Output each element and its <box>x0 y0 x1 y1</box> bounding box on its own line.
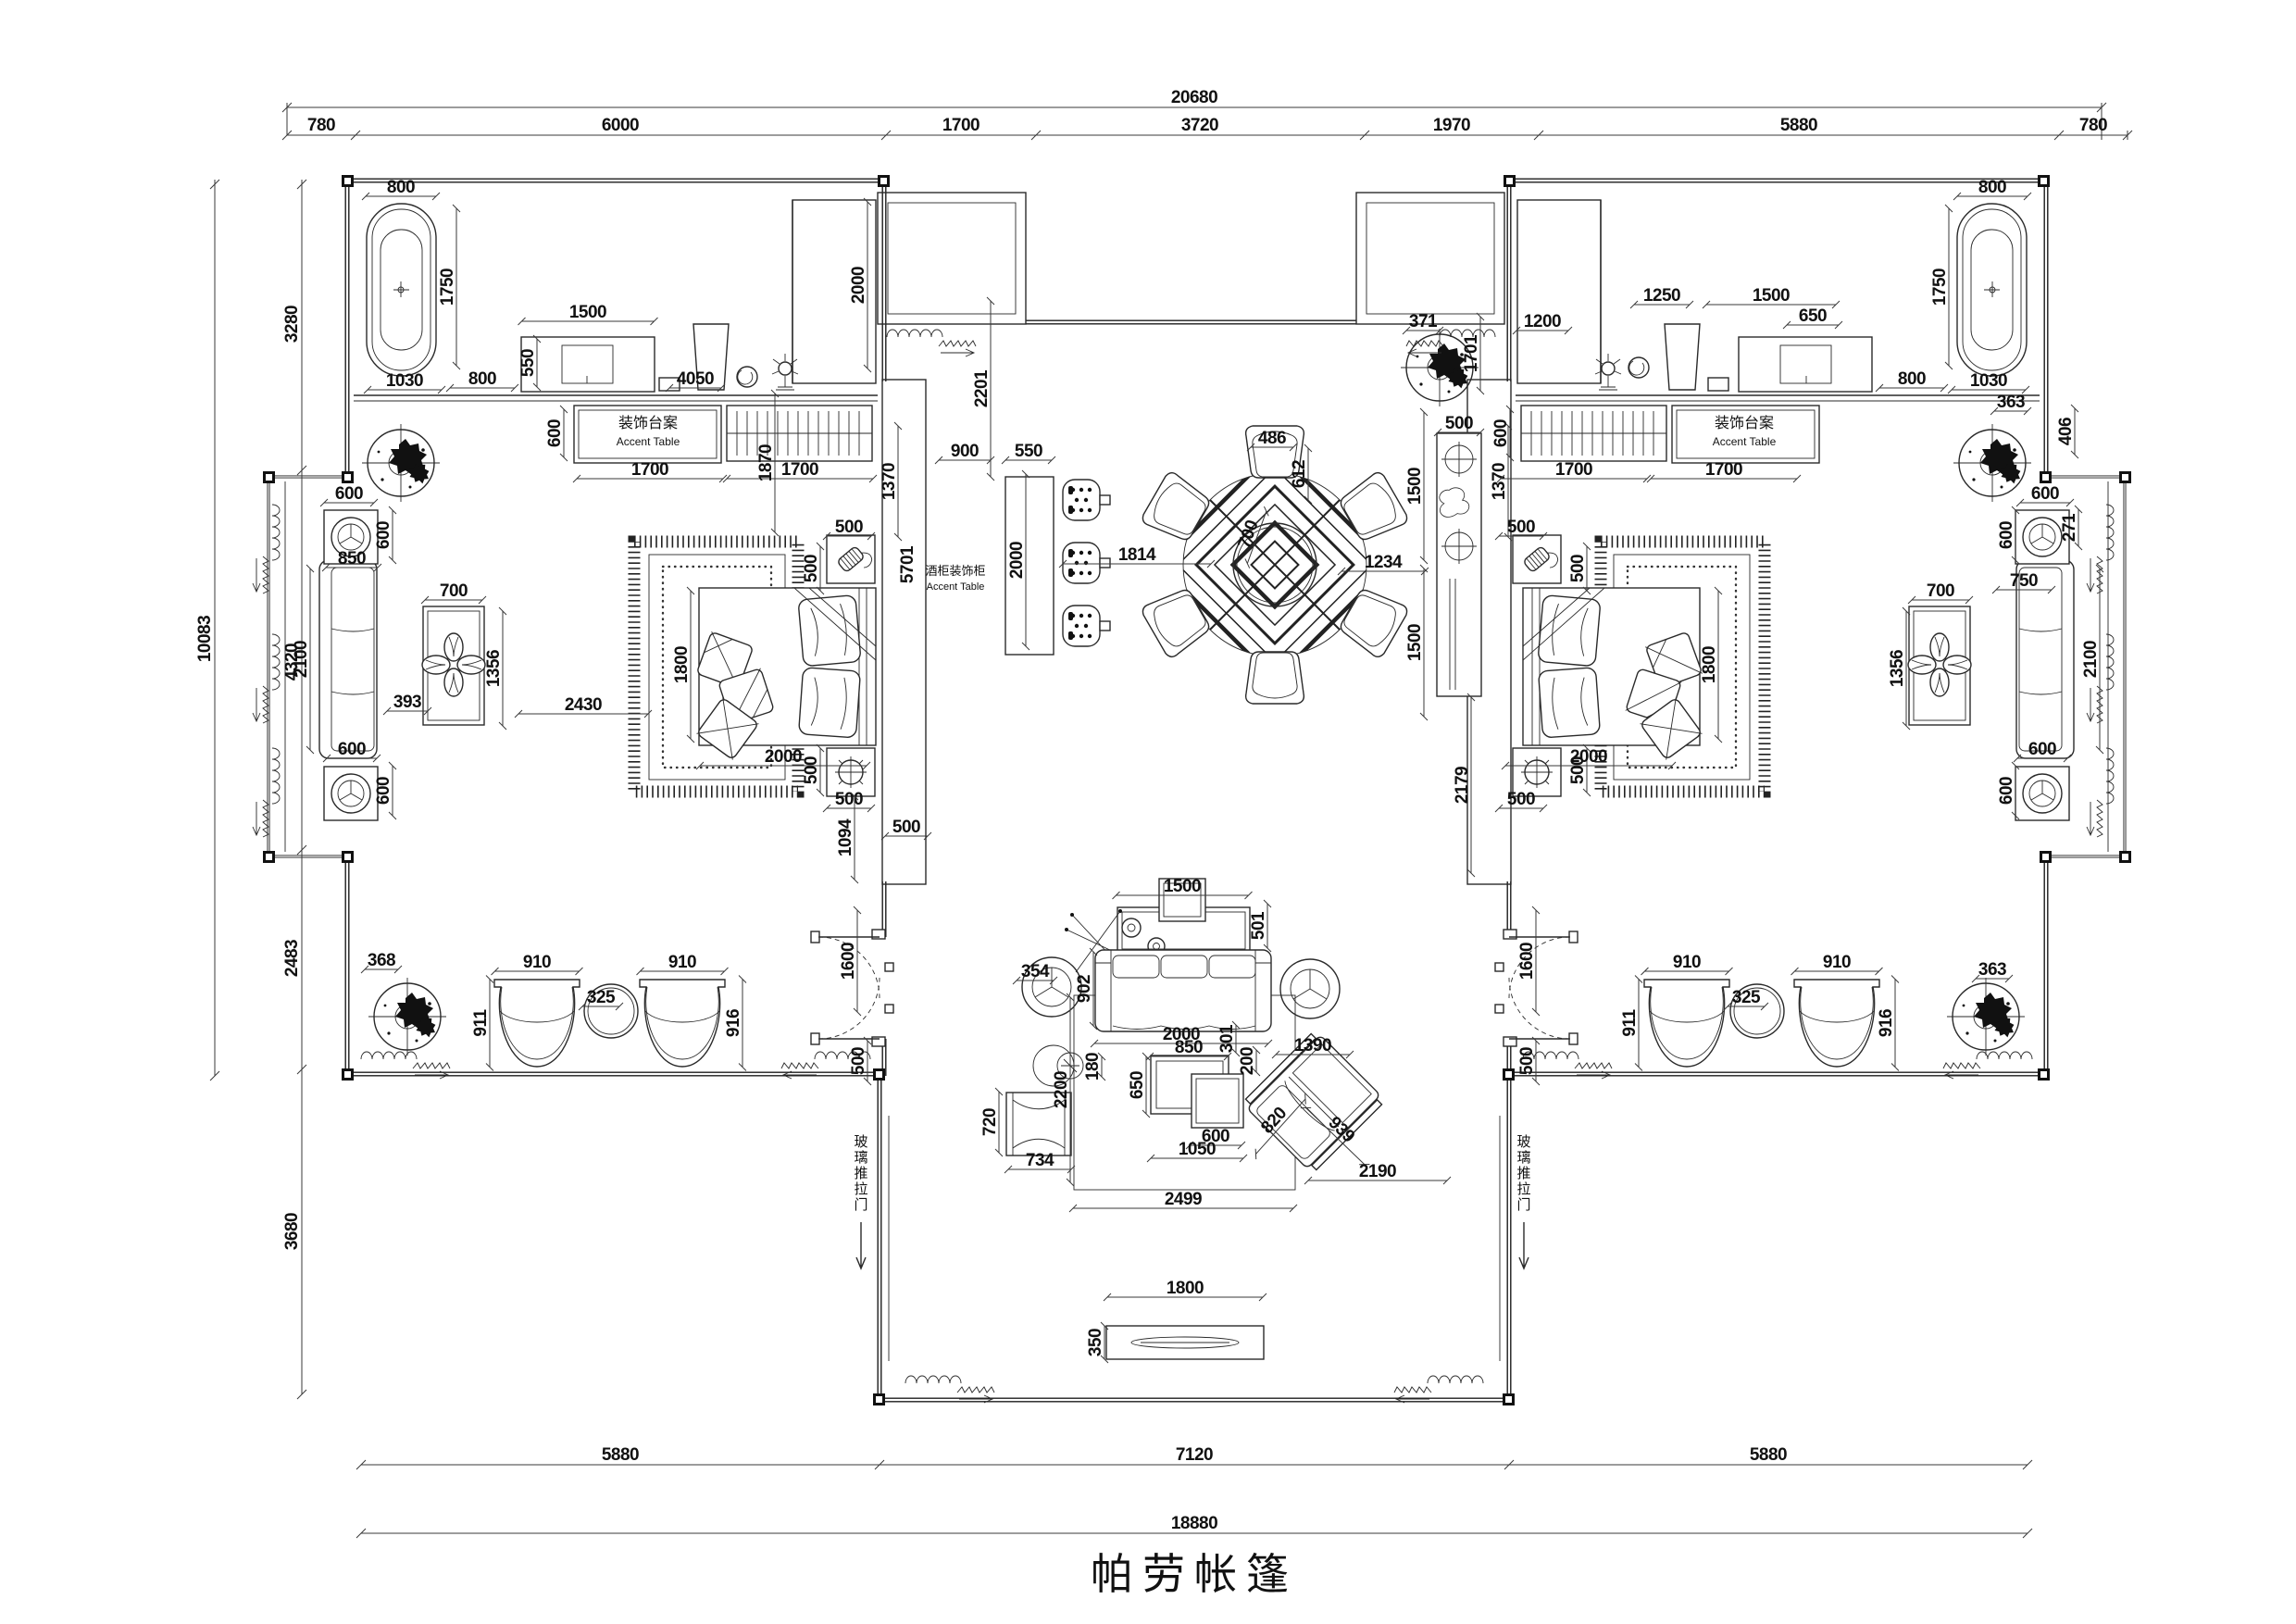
tub-chair-3 <box>1644 980 1729 1067</box>
dim-annotation: 910 <box>637 953 729 975</box>
dim-annotation: 780 <box>307 116 335 135</box>
dim-label: 2000 <box>765 747 802 767</box>
dim-label: 600 <box>374 777 393 805</box>
dimension-chains <box>210 103 2132 1538</box>
dim-label: 2499 <box>1165 1190 1202 1209</box>
dim-annotation: 5880 <box>602 1445 639 1465</box>
right-nightstand-top <box>1513 535 1561 583</box>
dim-annotation: 6000 <box>602 116 639 135</box>
dim-label: 612 <box>1290 460 1309 488</box>
dim-annotation: 800 <box>1876 369 1948 392</box>
dim-label: 734 <box>1026 1151 1054 1170</box>
dim-annotation: 1750 <box>438 205 460 369</box>
display-shelf <box>1437 433 1481 696</box>
dim-annotation: 916 <box>724 976 746 1071</box>
dim-label: Accent Table <box>617 435 680 448</box>
dim-annotation: 910 <box>1791 953 1883 975</box>
dim-label: 700 <box>1927 581 1954 601</box>
dim-annotation: 2499 <box>1069 1190 1297 1212</box>
dim-label: 3680 <box>282 1213 302 1250</box>
dim-annotation: 500 <box>1495 518 1547 540</box>
dim-annotation: Accent Table <box>1713 435 1777 448</box>
dim-annotation: 1500 <box>1113 877 1253 899</box>
dim-label: 酒柜装饰柜 <box>925 564 985 578</box>
dim-label: 1600 <box>839 943 858 980</box>
dim-label: 600 <box>1997 521 2016 549</box>
dim-label: 363 <box>1997 393 2025 412</box>
tv-console <box>1106 1326 1264 1359</box>
dim-annotation: 371 <box>1403 312 1443 334</box>
dim-label: 500 <box>802 555 821 582</box>
dim-annotation: 18880 <box>1171 1514 1217 1533</box>
dim-label: 1500 <box>569 303 606 322</box>
dim-label: 1800 <box>1700 646 1719 683</box>
tub-chair-1 <box>494 980 580 1067</box>
dim-label: 1750 <box>1930 269 1950 306</box>
dim-annotation: 550 <box>1002 442 1055 464</box>
dim-label: 1700 <box>631 460 668 480</box>
dim-label: 6000 <box>602 116 639 135</box>
dim-label: 916 <box>1877 1009 1896 1037</box>
left-nightstand-top <box>827 535 875 583</box>
dim-label: 2200 <box>1052 1071 1071 1108</box>
dim-annotation: 1700 <box>942 116 980 135</box>
dim-annotation: 1500 <box>518 303 658 325</box>
dim-annotation: 1750 <box>1930 205 1953 369</box>
dim-annotation: 2179 <box>1453 693 1475 877</box>
dim-label: 5880 <box>602 1445 639 1465</box>
dim-annotation: 325 <box>579 988 623 1010</box>
dim-label: 550 <box>518 349 538 377</box>
dim-label: 500 <box>1445 414 1473 433</box>
dim-annotation: 700 <box>421 581 486 604</box>
dim-annotation: 2200 <box>1052 993 1074 1186</box>
dim-annotation: 1030 <box>1948 371 2029 394</box>
dim-label: 1500 <box>1164 877 1201 896</box>
dim-label: 600 <box>338 740 366 759</box>
dim-annotation: 玻璃推拉门 <box>854 1134 867 1213</box>
pouf-2 <box>1063 543 1110 583</box>
dim-annotation: 301 <box>1217 1021 1240 1056</box>
dim-label: 1700 <box>1555 460 1592 480</box>
dim-label: 850 <box>338 549 366 568</box>
left-vanity-lamp-icon <box>772 354 798 390</box>
dim-label: 500 <box>835 518 863 537</box>
dim-label: 325 <box>587 988 616 1007</box>
dim-annotation: 装饰台案 <box>618 415 678 431</box>
dim-label: 20680 <box>1171 88 1217 107</box>
dim-annotation: 700 <box>1908 581 1973 604</box>
dim-annotation: 650 <box>1783 306 1842 329</box>
dim-label: 910 <box>668 953 696 972</box>
pouf-1 <box>1063 480 1110 520</box>
dim-annotation: 200 <box>1238 1046 1260 1076</box>
top-planter-right <box>1356 193 1504 324</box>
left-accent-table <box>574 406 872 463</box>
dim-annotation: 1200 <box>1513 312 1572 334</box>
pouf-3 <box>1063 606 1110 646</box>
dim-label: 325 <box>1732 988 1761 1007</box>
dim-label: 玻璃推拉门 <box>1516 1134 1530 1213</box>
dim-label: 1800 <box>1167 1279 1204 1298</box>
plant-right-bath <box>1953 424 2031 502</box>
dim-label: 800 <box>1898 369 1926 389</box>
dim-annotation: 7120 <box>1176 1445 1213 1465</box>
dim-label: 600 <box>335 484 363 504</box>
dim-label: 902 <box>1075 975 1094 1003</box>
dim-label: 1970 <box>1433 116 1470 135</box>
dim-label: 406 <box>2056 418 2076 445</box>
dim-annotation: 902 <box>1075 948 1097 1030</box>
dim-annotation: Accent Table <box>617 435 680 448</box>
dim-annotation: 900 <box>935 442 994 464</box>
dim-label: 1234 <box>1365 553 1403 572</box>
dim-annotation: 2100 <box>292 565 314 754</box>
right-accent-table <box>1521 406 1819 463</box>
dim-label: 911 <box>471 1008 491 1036</box>
dim-annotation: 酒柜装饰柜 <box>925 564 985 578</box>
dim-annotation: 393 <box>383 693 431 715</box>
dim-annotation: 1030 <box>364 371 445 394</box>
dim-annotation: 600 <box>320 484 378 506</box>
dim-annotation: 5880 <box>1750 1445 1787 1465</box>
dim-label: 2179 <box>1453 767 1472 804</box>
dim-label: 600 <box>545 419 565 447</box>
dim-label: 1870 <box>756 444 776 481</box>
dim-annotation: 3280 <box>282 306 302 343</box>
dim-annotation: 1800 <box>672 587 694 743</box>
dim-label: 393 <box>393 693 421 712</box>
side-table-right <box>1280 959 1340 1018</box>
dim-label: 500 <box>835 790 863 809</box>
dim-label: 1030 <box>386 371 423 391</box>
dim-annotation: 1390 <box>1272 1036 1354 1058</box>
dim-annotation: 装饰台案 <box>1715 415 1774 431</box>
dim-label: 1800 <box>672 646 692 683</box>
dim-annotation: 1500 <box>1703 286 1840 308</box>
dim-annotation: 玻璃推拉门 <box>1516 1134 1530 1213</box>
dim-label: 800 <box>387 178 415 197</box>
dim-label: 600 <box>374 521 393 549</box>
dim-label: 10083 <box>195 616 215 662</box>
dim-annotation: 911 <box>471 976 493 1071</box>
dim-label: 271 <box>2060 513 2079 542</box>
dim-label: 700 <box>440 581 468 601</box>
dim-label: 1356 <box>1888 650 1907 687</box>
dim-label: 1814 <box>1118 545 1156 565</box>
dim-label: 600 <box>1491 419 1511 447</box>
drawing-title: 帕劳帐篷 <box>1091 1550 1298 1598</box>
dim-annotation: 500 <box>881 818 931 840</box>
dim-label: 301 <box>1217 1024 1237 1053</box>
dim-annotation: 916 <box>1877 976 1899 1071</box>
dim-label: 1356 <box>484 650 504 687</box>
dim-label: 1200 <box>1524 312 1561 331</box>
dim-label: 650 <box>1128 1071 1147 1099</box>
dim-annotation: 3680 <box>282 1213 302 1250</box>
dim-label: 363 <box>1978 960 2006 980</box>
floorplan-page: 2068078060001700372019705880780100833280… <box>0 0 2296 1624</box>
left-bay-sofa <box>319 560 377 758</box>
dim-annotation: 1700 <box>723 460 877 482</box>
dim-annotation: 2000 <box>849 198 871 372</box>
dim-label: 800 <box>1978 178 2006 197</box>
dim-label: 600 <box>2031 484 2059 504</box>
dim-annotation: 1050 <box>1147 1140 1247 1162</box>
dim-label: 1390 <box>1294 1036 1331 1056</box>
dim-label: 玻璃推拉门 <box>854 1134 867 1213</box>
dim-label: 1700 <box>781 460 818 480</box>
dim-annotation: 780 <box>2079 116 2107 135</box>
dim-annotation: 354 <box>1013 962 1057 984</box>
plant-left-lounge <box>368 978 446 1056</box>
dim-annotation: 500 <box>849 1037 871 1085</box>
dim-label: 350 <box>1086 1329 1105 1356</box>
dim-label: 750 <box>2010 571 2038 591</box>
dim-annotation: 406 <box>2056 405 2078 458</box>
dim-label: 1050 <box>1179 1140 1216 1159</box>
glass-door-arrows <box>856 1222 1529 1268</box>
dim-annotation: 2190 <box>1304 1162 1451 1184</box>
dim-label: 500 <box>1517 1047 1537 1075</box>
dim-label: 500 <box>892 818 920 837</box>
dim-annotation: 500 <box>802 744 824 796</box>
dim-annotation: 1600 <box>1517 906 1540 1016</box>
dim-annotation: 1500 <box>1405 408 1428 564</box>
dim-label: 3280 <box>282 306 302 343</box>
dim-annotation: 363 <box>1972 960 2013 982</box>
dim-annotation: 1700 <box>1497 460 1651 482</box>
dim-label: 1370 <box>1490 463 1509 500</box>
dim-label: 2100 <box>2081 641 2101 678</box>
dim-label: Accent Table <box>927 581 985 593</box>
dim-annotation: 2483 <box>282 940 302 977</box>
dim-annotation: 501 <box>1249 900 1271 952</box>
dim-label: 2100 <box>292 641 311 678</box>
dim-label: 500 <box>1507 518 1535 537</box>
dim-label: 916 <box>724 1009 743 1037</box>
dim-annotation: 800 <box>446 369 518 392</box>
living-sofa <box>1095 950 1271 1031</box>
dim-label: 18880 <box>1171 1514 1217 1533</box>
dim-annotation: 350 <box>1086 1322 1108 1363</box>
left-bathtub <box>367 204 436 376</box>
dim-label: 2190 <box>1359 1162 1396 1181</box>
dim-annotation: 600 <box>2016 484 2074 506</box>
right-shower <box>1517 200 1601 383</box>
dim-annotation: 720 <box>980 1088 1003 1156</box>
dim-label: 2430 <box>565 695 602 715</box>
dim-label: 5880 <box>1750 1445 1787 1465</box>
tub-chair-4 <box>1794 980 1879 1067</box>
dim-annotation: 500 <box>1517 1037 1540 1085</box>
coffee-table-small <box>1192 1074 1243 1128</box>
dim-label: 1750 <box>438 269 457 306</box>
dim-label: 780 <box>307 116 335 135</box>
dim-annotation: 600 <box>545 406 568 461</box>
dim-label: 600 <box>1997 777 2016 805</box>
dim-annotation: 2100 <box>2081 565 2103 754</box>
right-bathtub <box>1957 204 2027 376</box>
dim-label: 501 <box>1249 911 1268 940</box>
dim-label: 2000 <box>849 267 868 304</box>
dim-annotation: 1800 <box>1104 1279 1267 1301</box>
dim-label: 910 <box>1823 953 1851 972</box>
dim-annotation: 5880 <box>1780 116 1817 135</box>
dim-label: 1700 <box>942 116 980 135</box>
dim-annotation: 10083 <box>195 616 215 662</box>
dim-label: 1600 <box>1517 943 1537 980</box>
dim-label: 1370 <box>880 463 899 500</box>
dim-label: 1250 <box>1643 286 1680 306</box>
dim-label: 1701 <box>1462 334 1481 372</box>
dim-annotation: 1356 <box>1888 607 1910 730</box>
left-bay-table-bottom <box>324 767 378 820</box>
dim-label: 500 <box>1568 555 1588 582</box>
dim-annotation: 600 <box>1491 406 1514 461</box>
dim-label: 2201 <box>972 369 992 407</box>
dim-annotation: 368 <box>361 951 402 973</box>
dim-label: 500 <box>1507 790 1535 809</box>
dim-label: 550 <box>1015 442 1042 461</box>
dim-annotation: 1500 <box>1405 565 1428 720</box>
dim-label: 4050 <box>677 369 714 389</box>
dim-annotation: 5701 <box>898 545 917 583</box>
dim-annotation: 180 <box>1083 1053 1105 1081</box>
dim-annotation: 910 <box>492 953 583 975</box>
tub-chair-2 <box>640 980 725 1067</box>
dim-label: 354 <box>1021 962 1050 981</box>
dim-label: 600 <box>2028 740 2056 759</box>
dim-label: 486 <box>1258 429 1286 448</box>
dim-label: 371 <box>1409 312 1438 331</box>
dimension-labels: 2068078060001700372019705880780100833280… <box>195 88 2107 1533</box>
dim-annotation: 2430 <box>515 695 652 718</box>
dim-label: 装饰台案 <box>1715 415 1774 431</box>
dim-annotation: 650 <box>1128 1053 1150 1118</box>
dim-label: 3720 <box>1181 116 1218 135</box>
top-planter-left <box>878 193 1026 324</box>
dim-label: 7120 <box>1176 1445 1213 1465</box>
dim-annotation: 600 <box>1997 762 2019 819</box>
dim-annotation: 1600 <box>839 906 861 1016</box>
dim-label: 200 <box>1238 1047 1257 1075</box>
dim-label: 1094 <box>836 818 855 856</box>
left-wardrobe-cabinet <box>882 380 926 884</box>
dim-label: 800 <box>468 369 496 389</box>
dim-label: 910 <box>523 953 551 972</box>
dim-label: 720 <box>980 1108 1000 1136</box>
dim-label: 2000 <box>1570 747 1607 767</box>
dim-annotation: 500 <box>802 543 824 594</box>
dim-label: 650 <box>1799 306 1827 326</box>
dim-annotation: 1250 <box>1630 286 1693 308</box>
right-bay-table-bottom <box>2015 767 2069 820</box>
dim-annotation: 20680 <box>1171 88 1217 107</box>
dim-annotation: 600 <box>1997 506 2019 564</box>
dim-annotation: 500 <box>1568 543 1591 594</box>
dining-rug <box>1160 450 1391 681</box>
dim-annotation: 911 <box>1620 976 1642 1071</box>
dim-label: 5701 <box>898 545 917 583</box>
plant-right-lounge <box>1947 978 2025 1056</box>
dim-label: 500 <box>802 756 821 784</box>
dim-label: 911 <box>1620 1008 1640 1036</box>
dim-label: 5880 <box>1780 116 1817 135</box>
left-coffee-table-flower <box>422 606 485 725</box>
dim-label: 850 <box>1175 1038 1203 1057</box>
floor-plan-canvas: 2068078060001700372019705880780100833280… <box>0 0 2296 1624</box>
dim-label: 装饰台案 <box>618 415 678 431</box>
right-vanity <box>1628 324 1872 392</box>
dim-annotation: 500 <box>1434 414 1484 436</box>
dim-label: 1700 <box>1705 460 1742 480</box>
dim-annotation: 3720 <box>1181 116 1218 135</box>
right-coffee-table-flower <box>1908 606 1971 725</box>
dim-label: 500 <box>849 1047 868 1075</box>
dim-label: 1500 <box>1753 286 1790 306</box>
dim-label: 2000 <box>1007 542 1027 579</box>
dim-label: 368 <box>368 951 395 970</box>
dim-annotation: Accent Table <box>927 581 985 593</box>
dim-label: 180 <box>1083 1053 1103 1081</box>
dim-label: 780 <box>2079 116 2107 135</box>
dim-label: 1500 <box>1405 624 1425 661</box>
dim-annotation: 910 <box>1641 953 1733 975</box>
dim-annotation: 500 <box>823 518 875 540</box>
dim-label: 2483 <box>282 940 302 977</box>
dim-annotation: 1356 <box>484 607 506 730</box>
left-vanity <box>521 324 757 392</box>
dim-label: 910 <box>1673 953 1701 972</box>
dim-annotation: 1800 <box>1700 587 1722 743</box>
plant-left-bath <box>362 424 440 502</box>
right-vanity-lamp-icon <box>1595 354 1621 390</box>
dim-label: 1500 <box>1405 468 1425 505</box>
dim-label: Accent Table <box>1713 435 1777 448</box>
dim-label: 1030 <box>1970 371 2007 391</box>
dim-label: 900 <box>951 442 979 461</box>
dim-annotation: 1970 <box>1433 116 1470 135</box>
dim-annotation: 325 <box>1724 988 1768 1010</box>
